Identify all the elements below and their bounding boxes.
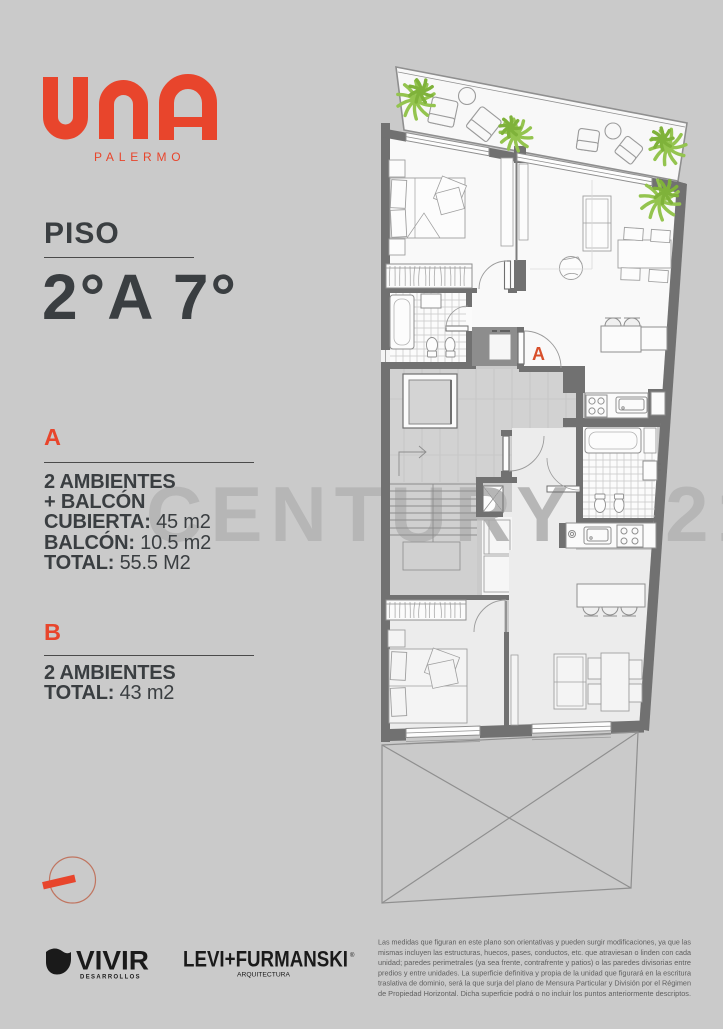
- svg-text:CENTURY 21: CENTURY 21: [146, 470, 723, 558]
